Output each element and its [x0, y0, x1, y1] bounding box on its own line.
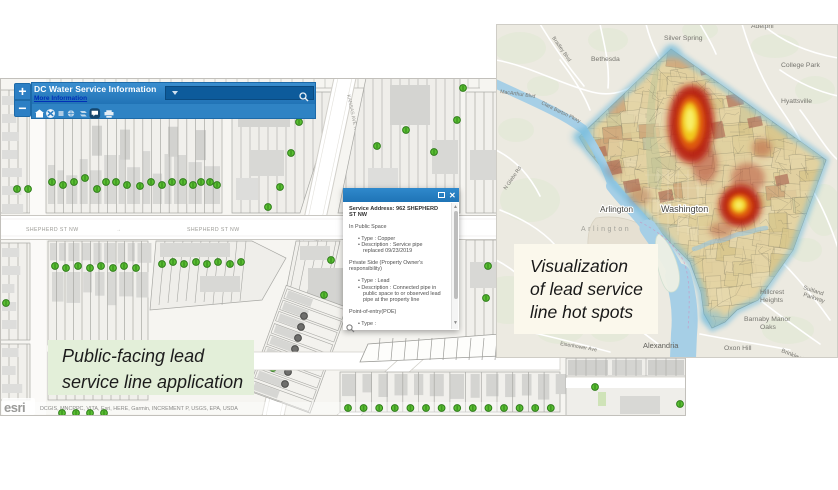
svg-text:Barnaby Manor: Barnaby Manor: [744, 316, 791, 323]
svg-text:→: →: [116, 227, 121, 233]
svg-text:SHEPHERD ST NW: SHEPHERD ST NW: [26, 227, 79, 233]
svg-text:esri: esri: [4, 400, 25, 415]
svg-text:Alexandria: Alexandria: [643, 341, 679, 350]
svg-text:Silver Spring: Silver Spring: [664, 35, 703, 42]
svg-text:SHEPHERD ST NW: SHEPHERD ST NW: [187, 227, 240, 233]
svg-text:Hillcrest: Hillcrest: [760, 289, 784, 296]
svg-text:Arlington: Arlington: [581, 226, 631, 233]
svg-text:Hyattsville: Hyattsville: [781, 98, 812, 105]
svg-text:Oaks: Oaks: [760, 324, 776, 331]
svg-text:DCGIS, MNCPPC, VITA, Esri, HER: DCGIS, MNCPPC, VITA, Esri, HERE, Garmin,…: [40, 406, 238, 412]
svg-text:Bethesda: Bethesda: [591, 56, 620, 63]
svg-text:Oxon Hill: Oxon Hill: [724, 345, 752, 352]
svg-text:Arlington: Arlington: [600, 204, 633, 214]
svg-text:College Park: College Park: [781, 62, 821, 69]
svg-text:Heights: Heights: [760, 297, 784, 304]
svg-text:Washington: Washington: [661, 204, 708, 214]
